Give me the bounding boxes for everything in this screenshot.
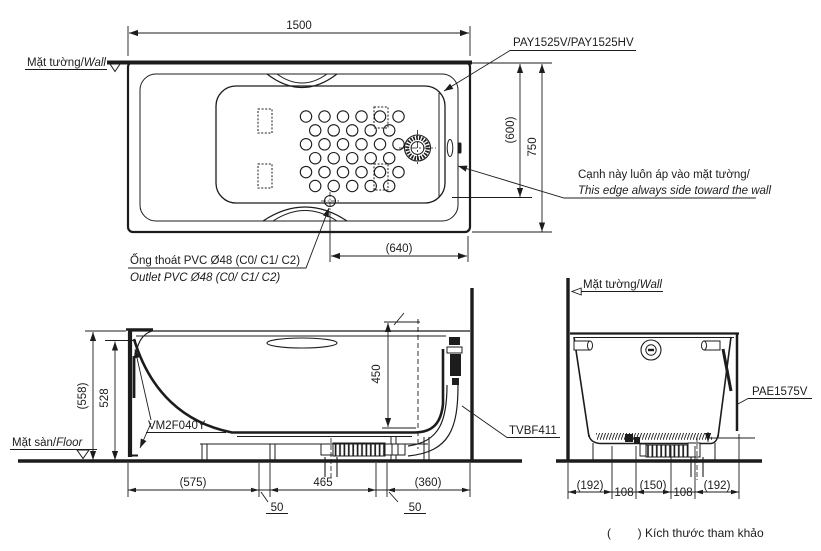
model-leader: [444, 51, 636, 92]
svg-text:(192): (192): [704, 480, 731, 492]
outlet-label-vi: Ống thoát PVC Ø48 (C0/ C1/ C2): [130, 253, 300, 267]
bathtub-technical-drawing: Mặt tường/Wall: [0, 0, 821, 551]
svg-text:528: 528: [99, 388, 111, 407]
textured-bottom: [596, 433, 712, 440]
svg-text:465: 465: [313, 477, 332, 489]
panel-part-label: PAE1575V: [752, 386, 808, 398]
apron-part-label: VM2F040Y: [148, 420, 206, 432]
svg-text:108: 108: [614, 487, 633, 499]
floor-datum-icon: [77, 450, 89, 459]
dim-1500: 1500: [128, 20, 470, 56]
overflow-end: [641, 340, 661, 360]
apron-leader-2: [140, 423, 151, 448]
reference-note: ( ) Kích thước tham khảo: [607, 526, 764, 540]
svg-text:(575): (575): [180, 477, 207, 489]
overflow-slot: [447, 140, 453, 157]
dim-450: 450: [371, 313, 420, 449]
top-view: Mặt tường/Wall: [25, 20, 771, 284]
edge-note-vi: Cạnh này luôn áp vào mặt tường/: [578, 169, 751, 181]
svg-text:(150): (150): [640, 480, 667, 492]
svg-text:(360): (360): [415, 477, 442, 489]
outlet-plan: [321, 192, 339, 210]
drain-plan: [399, 130, 436, 166]
tub-end-outline: [570, 334, 755, 481]
dim-750: 750: [472, 63, 552, 232]
drawing-sheet: Mặt tường/Wall: [0, 0, 821, 551]
outlet-label-en: Outlet PVC Ø48 (C0/ C1/ C2): [130, 272, 280, 284]
dim-640: (640): [330, 212, 468, 262]
svg-text:(558): (558): [77, 382, 89, 409]
floor-label: Mặt sàn/Floor: [12, 437, 83, 449]
top-wall-label: Mặt tường/Wall: [27, 57, 106, 69]
svg-text:(640): (640): [386, 243, 413, 255]
edge-note-en: This edge always side toward the wall: [578, 185, 771, 197]
side-bottom-dims: (575) 465 (360) 50 50: [128, 463, 470, 514]
side-view: Mặt sàn/Floor: [10, 288, 560, 514]
svg-text:(192): (192): [577, 480, 604, 492]
svg-text:450: 450: [371, 364, 383, 383]
svg-text:50: 50: [271, 502, 284, 514]
svg-text:1500: 1500: [286, 20, 312, 32]
drain-part-label: TVBF411: [509, 425, 557, 437]
drain-leader: [462, 406, 507, 438]
end-wall-label: Mặt tường/Wall: [583, 279, 662, 291]
anti-slip-dots: [300, 111, 404, 192]
svg-text:50: 50: [409, 502, 422, 514]
shell-curve: [134, 339, 443, 433]
grab-handle-side: [267, 338, 337, 348]
model-label: PAY1525V/PAY1525HV: [513, 37, 634, 49]
svg-text:(600): (600): [505, 116, 517, 143]
corrugated-hose: [333, 443, 385, 456]
overflow-mark: [458, 143, 462, 154]
end-view: Mặt tường/Wall: [556, 278, 812, 499]
svg-text:108: 108: [673, 487, 692, 499]
svg-text:750: 750: [527, 137, 539, 156]
tub-plan-outline: [128, 62, 470, 232]
dim-600: (600): [452, 64, 532, 198]
